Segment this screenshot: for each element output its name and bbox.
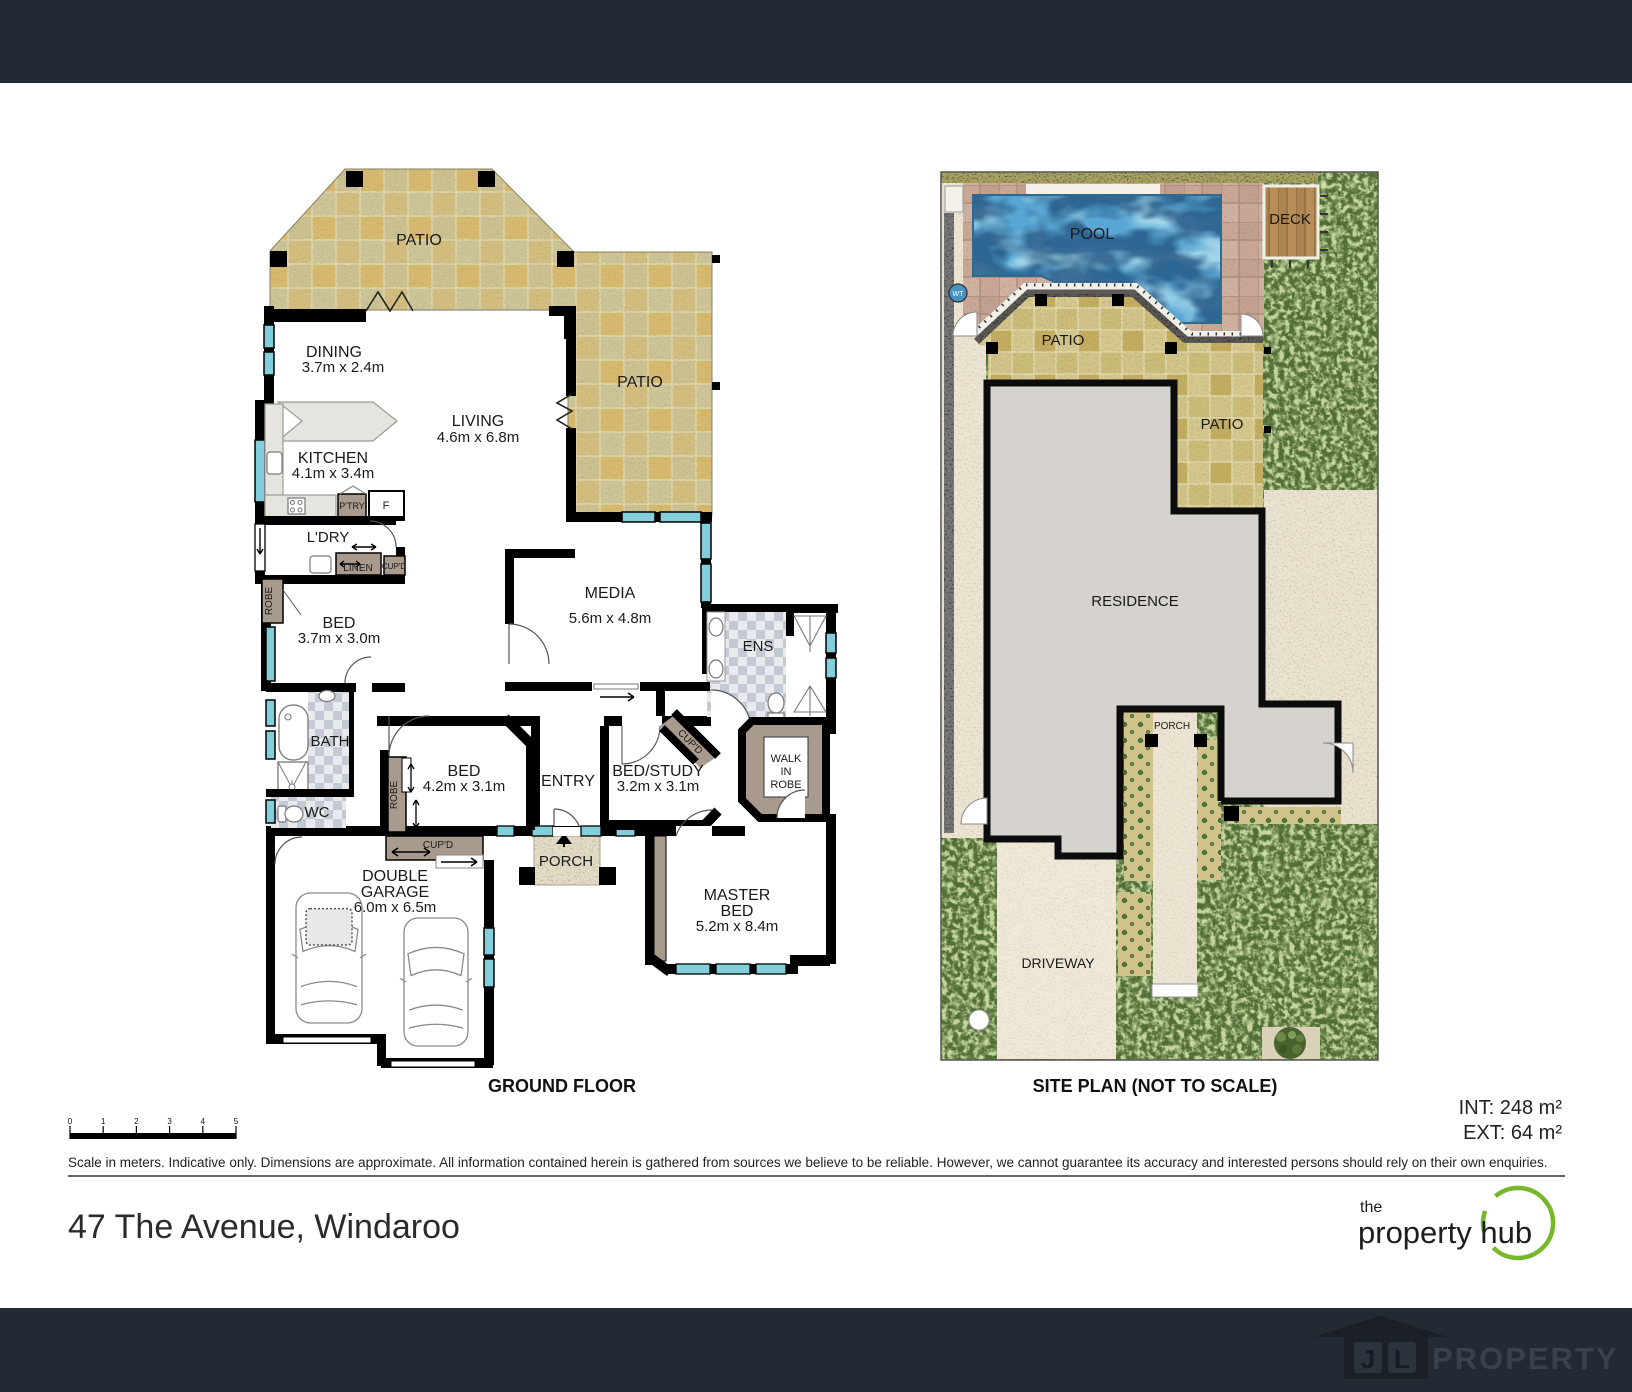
svg-text:property hub: property hub: [1358, 1215, 1532, 1250]
svg-text:EXT: 64 m²: EXT: 64 m²: [1463, 1122, 1562, 1144]
svg-text:DECK: DECK: [1269, 211, 1311, 228]
svg-text:3: 3: [167, 1117, 172, 1126]
svg-text:BATH: BATH: [311, 733, 350, 750]
svg-text:ENS: ENS: [743, 638, 774, 655]
svg-text:WC: WC: [305, 804, 330, 821]
svg-text:PATIO: PATIO: [1042, 332, 1085, 349]
svg-text:ROBE: ROBE: [264, 587, 275, 616]
svg-text:5.6m x 4.8m: 5.6m x 4.8m: [569, 610, 652, 627]
svg-text:DOUBLE: DOUBLE: [362, 868, 428, 885]
svg-text:2: 2: [134, 1117, 139, 1126]
svg-text:ROBE: ROBE: [770, 779, 801, 791]
svg-text:PATIO: PATIO: [617, 374, 663, 391]
svg-text:POOL: POOL: [1070, 226, 1115, 243]
svg-text:DRIVEWAY: DRIVEWAY: [1021, 955, 1095, 971]
svg-text:P'TRY: P'TRY: [339, 501, 365, 511]
svg-text:GROUND FLOOR: GROUND FLOOR: [488, 1076, 636, 1096]
svg-text:RESIDENCE: RESIDENCE: [1091, 593, 1179, 610]
svg-text:L'DRY: L'DRY: [307, 529, 350, 546]
svg-text:PATIO: PATIO: [1201, 416, 1244, 433]
svg-text:4: 4: [201, 1117, 206, 1126]
svg-text:CUP'D: CUP'D: [382, 562, 406, 571]
svg-text:IN: IN: [781, 766, 792, 778]
svg-text:5: 5: [234, 1117, 239, 1126]
svg-text:6.0m x 6.5m: 6.0m x 6.5m: [354, 899, 437, 916]
svg-text:SITE PLAN (NOT TO SCALE): SITE PLAN (NOT TO SCALE): [1033, 1076, 1278, 1096]
svg-text:F: F: [383, 500, 390, 512]
svg-text:PORCH: PORCH: [539, 853, 593, 870]
svg-text:ENTRY: ENTRY: [541, 773, 595, 790]
svg-text:MASTER: MASTER: [704, 887, 771, 904]
svg-text:LIVING: LIVING: [452, 413, 504, 430]
svg-text:ROBE: ROBE: [389, 781, 400, 810]
svg-text:INT: 248 m²: INT: 248 m²: [1459, 1097, 1563, 1119]
svg-text:0: 0: [68, 1117, 73, 1126]
svg-text:1: 1: [101, 1117, 106, 1126]
svg-text:LINEN: LINEN: [343, 563, 372, 574]
svg-text:Scale in meters. Indicative on: Scale in meters. Indicative only. Dimens…: [68, 1155, 1548, 1170]
svg-text:5.2m x 8.4m: 5.2m x 8.4m: [696, 918, 779, 935]
svg-text:WALK: WALK: [771, 753, 802, 765]
svg-text:the: the: [1360, 1199, 1382, 1216]
svg-text:CUP'D: CUP'D: [423, 840, 453, 851]
svg-text:3.2m x 3.1m: 3.2m x 3.1m: [617, 778, 700, 795]
svg-text:47 The Avenue, Windaroo: 47 The Avenue, Windaroo: [68, 1208, 460, 1246]
svg-text:4.6m x 6.8m: 4.6m x 6.8m: [437, 429, 520, 446]
svg-text:PORCH: PORCH: [1154, 721, 1190, 732]
svg-text:J: J: [1361, 1344, 1375, 1374]
svg-text:4.1m x 3.4m: 4.1m x 3.4m: [292, 465, 375, 482]
svg-text:PROPERTY: PROPERTY: [1432, 1341, 1619, 1376]
svg-text:L: L: [1394, 1344, 1410, 1374]
svg-text:WT: WT: [953, 291, 965, 298]
svg-text:PATIO: PATIO: [396, 232, 442, 249]
svg-text:3.7m x 2.4m: 3.7m x 2.4m: [302, 359, 385, 376]
svg-text:4.2m x 3.1m: 4.2m x 3.1m: [423, 778, 506, 795]
svg-text:MEDIA: MEDIA: [585, 585, 636, 602]
svg-text:3.7m x 3.0m: 3.7m x 3.0m: [298, 630, 381, 647]
